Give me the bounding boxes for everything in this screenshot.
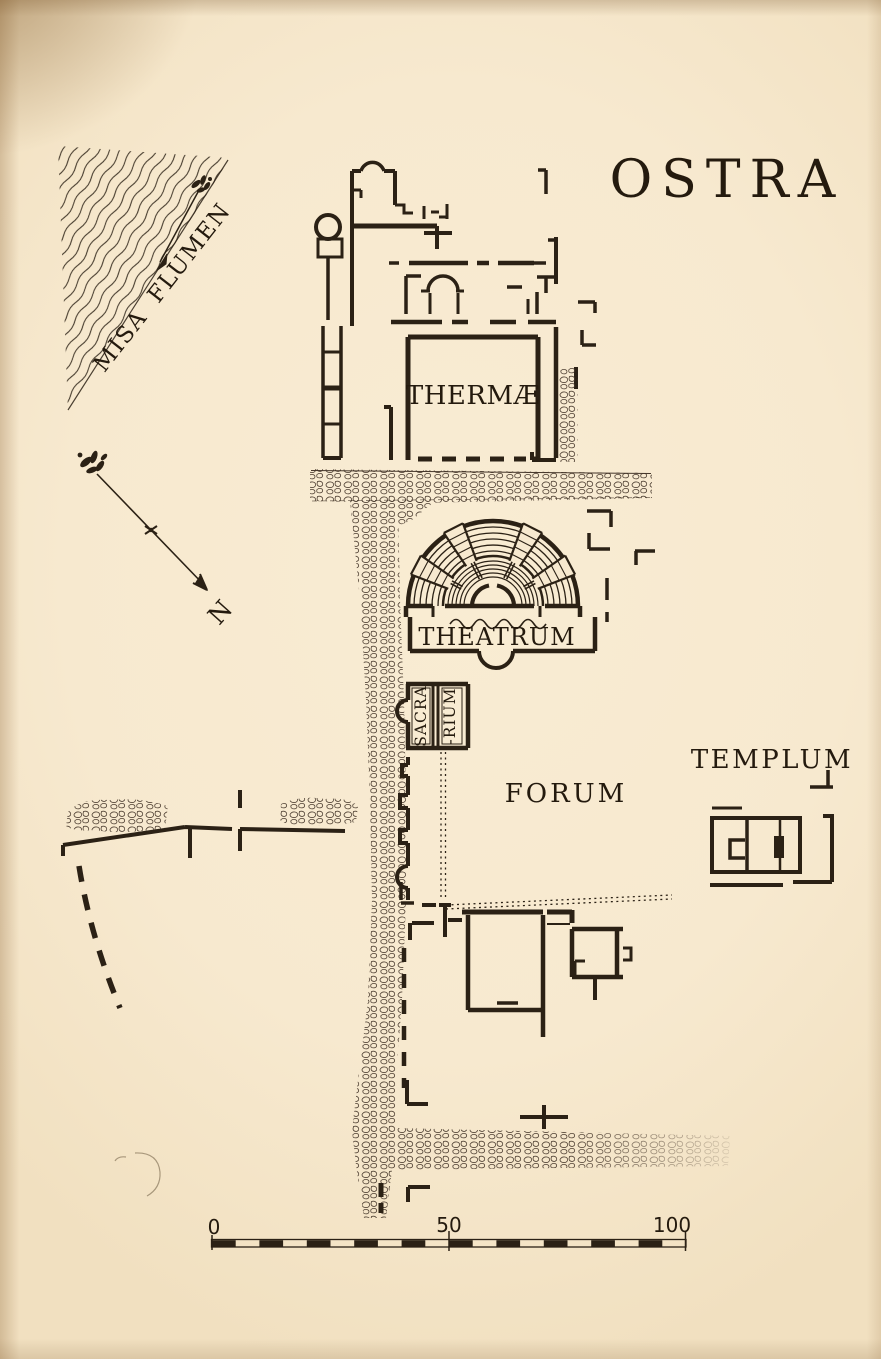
survey-cross-mark: [520, 1105, 568, 1129]
templum-label: TEMPLUM: [691, 745, 853, 775]
scale-bar: 0 50 100: [208, 1213, 691, 1251]
forum-colonnade-dotted: [441, 752, 672, 909]
feather-plume-icon: [78, 450, 109, 475]
sacrarium-label-top: SACRA: [412, 685, 430, 747]
templum-plan: [710, 770, 834, 885]
theater-stair-wedge: [444, 523, 482, 579]
scale-bar-segments: [212, 1240, 662, 1247]
road-branch-east: [392, 1128, 730, 1170]
sacrarium-label-bottom: -RIUM: [441, 688, 459, 745]
pencil-smudge: [115, 1153, 160, 1196]
thermae-label: THERMÆ: [406, 381, 540, 411]
site-plan-svg: OSTRA MISA FLUMEN N: [0, 0, 881, 1359]
scale-tick-50: 50: [436, 1213, 461, 1237]
north-label: N: [202, 594, 238, 630]
forum-label: FORUM: [505, 779, 627, 809]
scale-tick-0: 0: [208, 1215, 221, 1239]
theatrum-label: THEATRUM: [418, 623, 575, 651]
map-title: OSTRA: [610, 150, 845, 210]
map-page: OSTRA MISA FLUMEN N: [0, 0, 881, 1359]
west-ruins-walls: [63, 790, 358, 1008]
north-arrow: [78, 450, 207, 590]
scale-tick-100: 100: [653, 1213, 691, 1237]
thermae-plan: [316, 162, 596, 462]
river-hatching: [58, 146, 230, 412]
road-decumanus: [310, 469, 652, 503]
theater-stair-wedge: [504, 523, 542, 579]
